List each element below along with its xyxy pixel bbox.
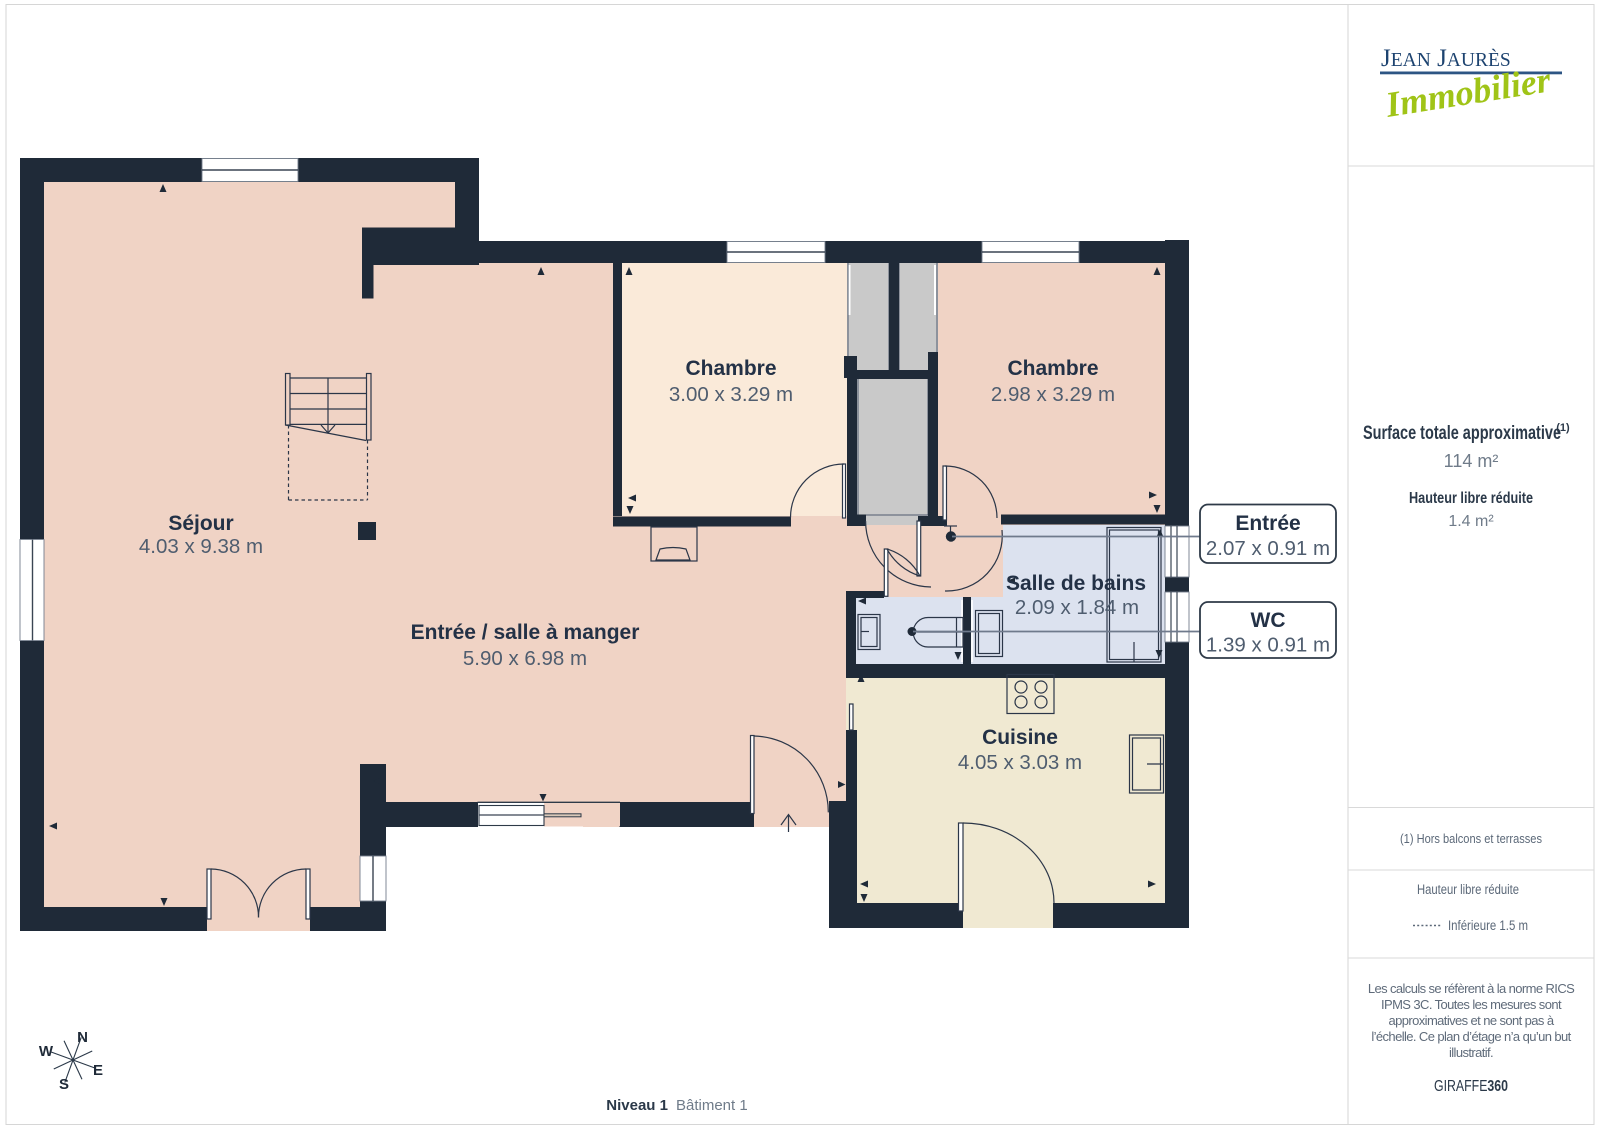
svg-text:IPMS 3C. Toutes les mesures so: IPMS 3C. Toutes les mesures sont [1381, 997, 1562, 1012]
svg-text:2.98 x 3.29 m: 2.98 x 3.29 m [991, 383, 1115, 406]
svg-text:Chambre: Chambre [1007, 357, 1098, 380]
svg-text:1.4 m²: 1.4 m² [1448, 513, 1494, 530]
svg-text:2.07 x 0.91 m: 2.07 x 0.91 m [1206, 537, 1330, 560]
svg-text:3.00 x 3.29 m: 3.00 x 3.29 m [669, 383, 793, 406]
svg-text:114 m²: 114 m² [1444, 451, 1499, 471]
svg-text:W: W [39, 1043, 54, 1060]
svg-text:4.05 x 3.03 m: 4.05 x 3.03 m [958, 751, 1082, 774]
svg-text:S: S [59, 1076, 69, 1093]
svg-text:Inférieure 1.5 m: Inférieure 1.5 m [1448, 918, 1528, 933]
svg-text:5.90 x 6.98 m: 5.90 x 6.98 m [463, 647, 587, 670]
svg-text:Cuisine: Cuisine [982, 726, 1058, 749]
svg-text:GIRAFFE360: GIRAFFE360 [1434, 1078, 1508, 1095]
svg-text:1.39 x 0.91 m: 1.39 x 0.91 m [1206, 634, 1330, 657]
svg-text:approximatives et ne sont pas: approximatives et ne sont pas à [1389, 1013, 1555, 1028]
svg-text:(1) Hors balcons et terrasses: (1) Hors balcons et terrasses [1400, 831, 1542, 846]
svg-text:Entrée: Entrée [1235, 512, 1300, 535]
svg-text:Hauteur libre réduite: Hauteur libre réduite [1409, 490, 1533, 507]
svg-text:N: N [77, 1029, 88, 1046]
svg-text:Les calculs se réfèrent à la n: Les calculs se réfèrent à la norme RICS [1368, 981, 1575, 996]
svg-text:Hauteur libre réduite: Hauteur libre réduite [1417, 882, 1519, 897]
svg-text:Chambre: Chambre [685, 357, 776, 380]
svg-text:Entrée / salle à manger: Entrée / salle à manger [411, 621, 640, 644]
svg-text:l’échelle. Ce plan d’étage n’a: l’échelle. Ce plan d’étage n’a qu’un but [1371, 1029, 1571, 1044]
svg-text:2.09 x 1.84 m: 2.09 x 1.84 m [1015, 596, 1139, 619]
svg-text:illustratif.: illustratif. [1449, 1045, 1493, 1060]
svg-text:WC: WC [1251, 609, 1286, 632]
svg-text:4.03 x 9.38 m: 4.03 x 9.38 m [139, 535, 263, 558]
svg-text:Séjour: Séjour [168, 512, 233, 535]
svg-text:Salle de bains: Salle de bains [1006, 572, 1146, 595]
svg-text:Niveau 1Bâtiment 1: Niveau 1Bâtiment 1 [606, 1097, 747, 1114]
svg-text:Surface totale approximative: Surface totale approximative [1363, 423, 1561, 444]
svg-text:(1): (1) [1556, 422, 1570, 434]
svg-text:E: E [93, 1062, 103, 1079]
